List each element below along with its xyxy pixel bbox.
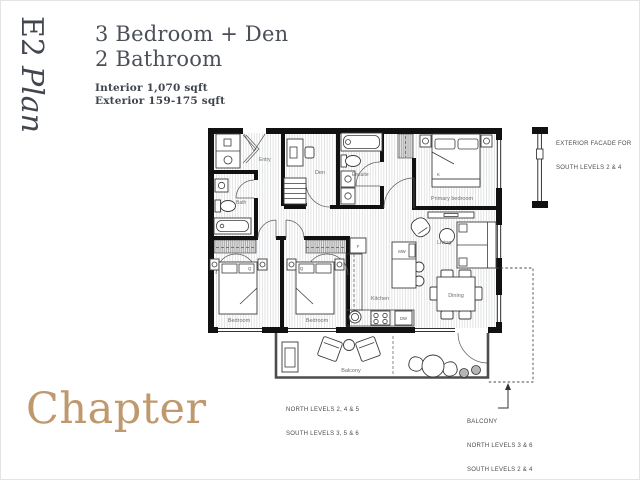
balcony-callout-line1: NORTH LEVELS 3 & 6 <box>467 442 533 450</box>
room-label-primary-bedroom: Primary bedroom <box>431 196 474 202</box>
planter-box <box>282 342 298 372</box>
brochure-page: E2 Plan 3 Bedroom + Den 2 Bathroom Inter… <box>0 0 640 480</box>
facade-detail <box>532 127 548 208</box>
room-label-kitchen: Kitchen <box>371 296 389 302</box>
plan-name-vertical: E2 Plan <box>16 16 46 133</box>
room-label-bedroom-b: Bedroom <box>306 318 329 324</box>
washer-dryer-stack <box>216 134 240 168</box>
facade-annotation: EXTERIOR FACADE FOR SOUTH LEVELS 2 & 4 <box>556 124 631 188</box>
bistro-table <box>422 355 444 377</box>
title-line-2: 2 Bathroom <box>95 47 288 72</box>
page-title: 3 Bedroom + Den 2 Bathroom <box>95 22 288 72</box>
planter-pot <box>472 366 481 375</box>
facade-annotation-line2: SOUTH LEVELS 2 & 4 <box>556 164 631 172</box>
area-summary: Interior 1,070 sqft Exterior 159-175 sqf… <box>95 82 225 107</box>
balcony-levels-line2: SOUTH LEVELS 3, 5 & 6 <box>286 430 359 438</box>
balcony-callout-title: BALCONY <box>467 418 533 426</box>
kitchen-sink <box>349 311 361 323</box>
room-label-dining: Dining <box>448 293 464 299</box>
room-label-balcony: Balcony <box>341 368 361 374</box>
balcony-levels-line1: NORTH LEVELS 2, 4 & 5 <box>286 406 359 414</box>
lounge-chair <box>317 336 343 362</box>
room-label-bath: Bath <box>236 200 247 206</box>
lounge-chair <box>355 336 381 362</box>
exterior-area: Exterior 159-175 sqft <box>95 95 225 108</box>
microwave-label: MW <box>398 249 405 254</box>
linen-shelves <box>284 178 306 204</box>
title-line-1: 3 Bedroom + Den <box>95 22 288 47</box>
side-table <box>344 340 355 351</box>
plan-code: E2 <box>16 16 46 57</box>
room-label-den: Den <box>315 170 325 176</box>
balcony-levels-annotation: NORTH LEVELS 2, 4 & 5 SOUTH LEVELS 3, 5 … <box>286 390 359 454</box>
balcony <box>276 333 488 378</box>
dishwasher-label: DW <box>400 316 407 321</box>
balcony-callout-annotation: BALCONY NORTH LEVELS 3 & 6 SOUTH LEVELS … <box>467 402 533 480</box>
fridge-label: F <box>357 244 360 249</box>
balcony-callout-line2: SOUTH LEVELS 2 & 4 <box>467 466 533 474</box>
plan-word: Plan <box>16 66 46 133</box>
chapter-logo: Chapter <box>26 384 207 434</box>
king-bed-label: K <box>437 172 440 177</box>
room-label-ensuite: Ensuite <box>352 172 369 178</box>
facade-annotation-line1: EXTERIOR FACADE FOR <box>556 140 631 148</box>
room-label-living: Living <box>437 240 451 246</box>
interior-area: Interior 1,070 sqft <box>95 82 225 95</box>
planter-pot <box>460 369 469 378</box>
floor-plan: K F <box>195 113 555 430</box>
callout-arrow <box>505 383 511 390</box>
room-label-bedroom-a: Bedroom <box>228 318 251 324</box>
room-label-entry: Entry <box>259 157 271 163</box>
